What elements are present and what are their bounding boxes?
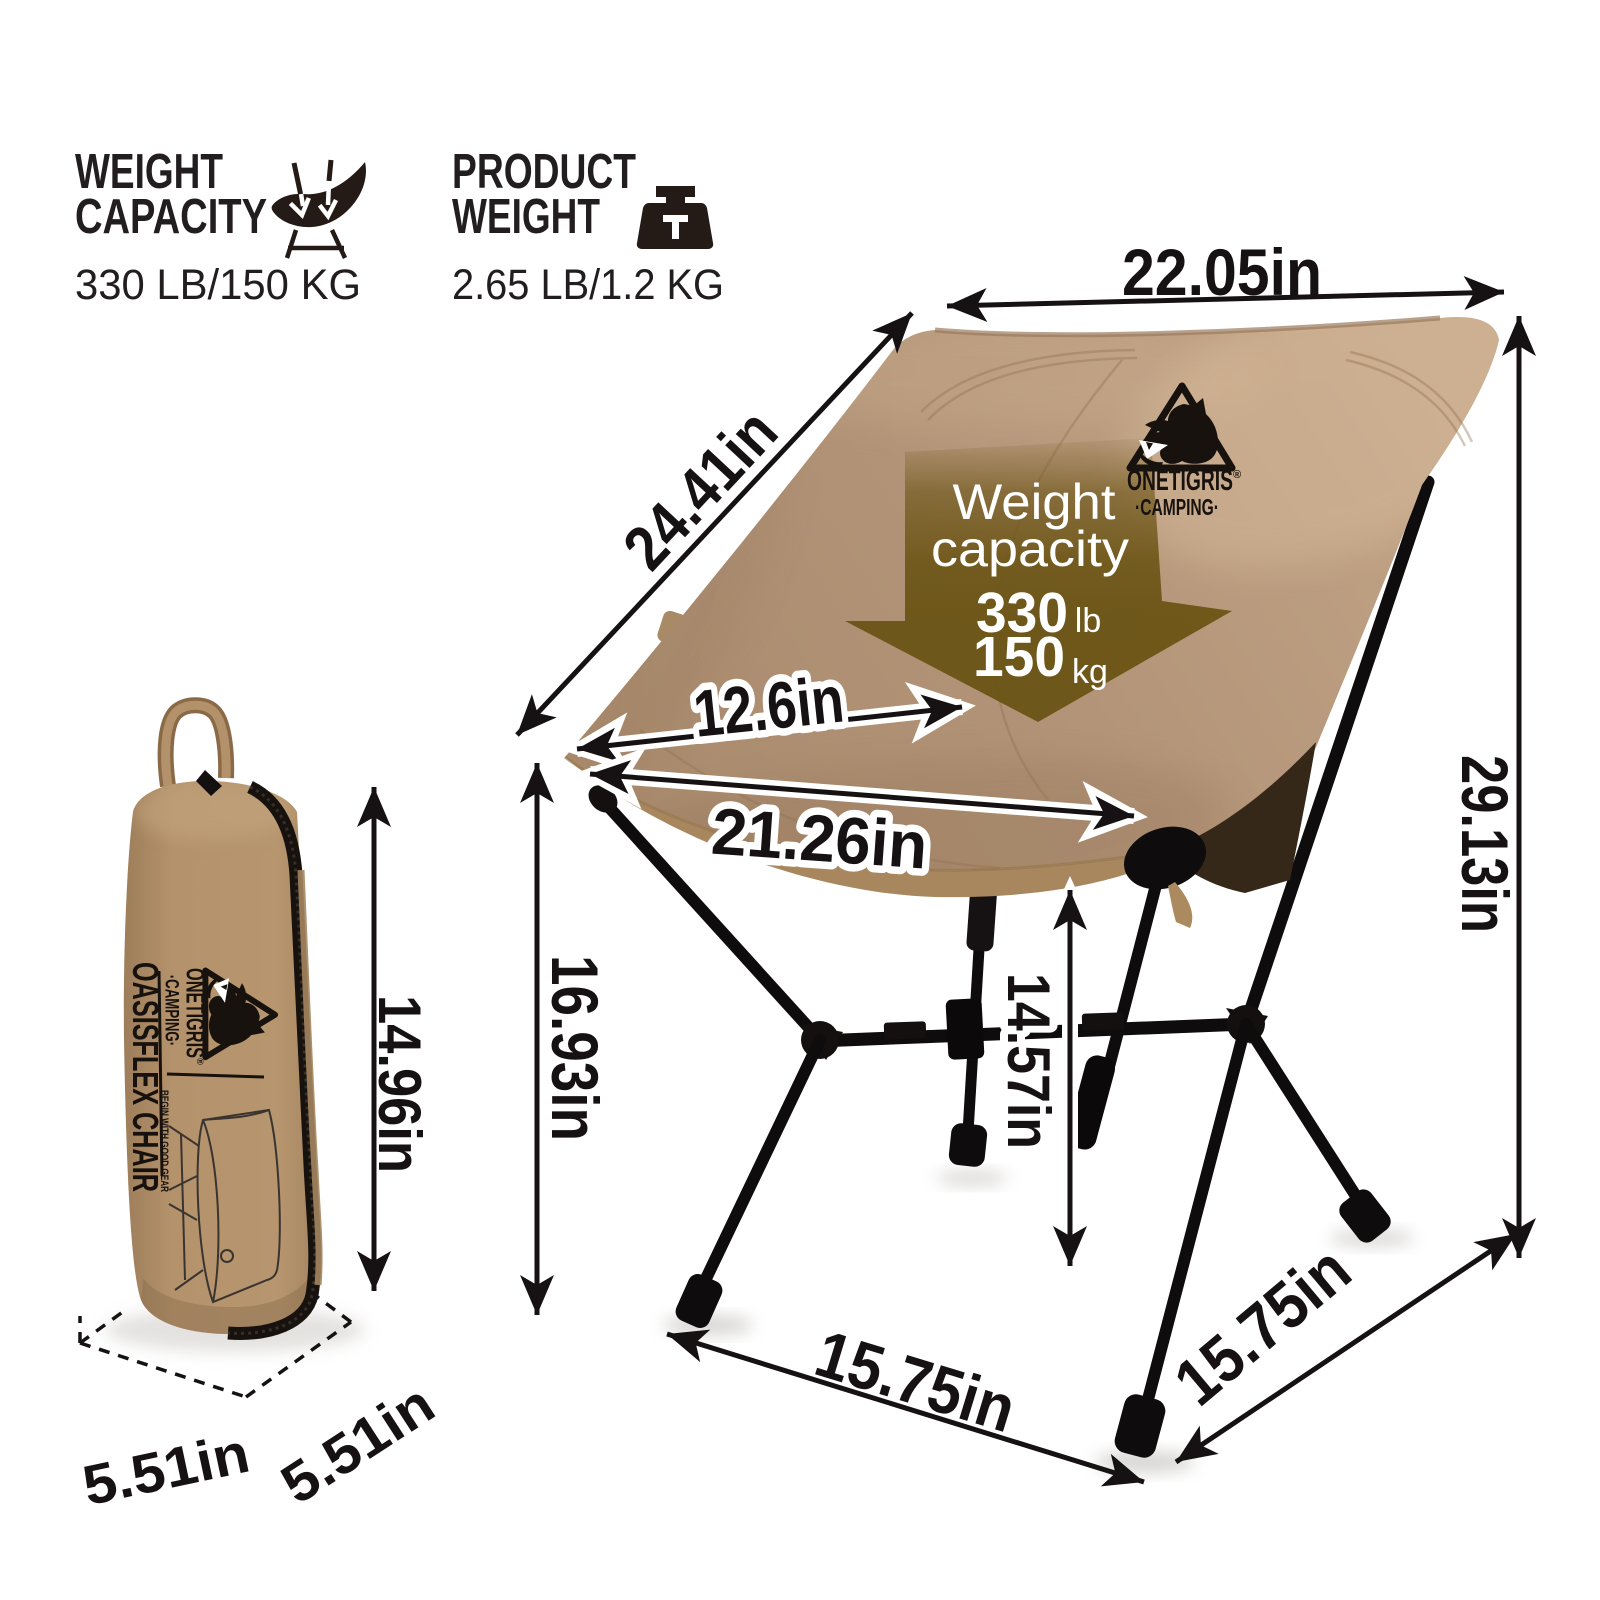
svg-text:150: 150 bbox=[973, 625, 1065, 689]
svg-text:16.93in: 16.93in bbox=[538, 955, 612, 1141]
svg-text:29.13in: 29.13in bbox=[1448, 755, 1522, 933]
svg-text:12.6in: 12.6in bbox=[690, 661, 847, 750]
svg-text:14.96in: 14.96in bbox=[366, 995, 433, 1173]
svg-text:capacity: capacity bbox=[931, 521, 1129, 577]
svg-text:WEIGHT: WEIGHT bbox=[452, 190, 600, 244]
svg-text:lb: lb bbox=[1075, 602, 1101, 640]
svg-text:22.05in: 22.05in bbox=[1122, 235, 1322, 309]
svg-text:2.65 LB/1.2 KG: 2.65 LB/1.2 KG bbox=[452, 261, 724, 309]
svg-text:kg: kg bbox=[1072, 653, 1108, 691]
svg-text:CAPACITY: CAPACITY bbox=[75, 190, 267, 244]
svg-text:21.26in: 21.26in bbox=[709, 794, 930, 883]
svg-text:330 LB/150 KG: 330 LB/150 KG bbox=[75, 261, 361, 309]
svg-text:14.57in: 14.57in bbox=[995, 973, 1062, 1149]
